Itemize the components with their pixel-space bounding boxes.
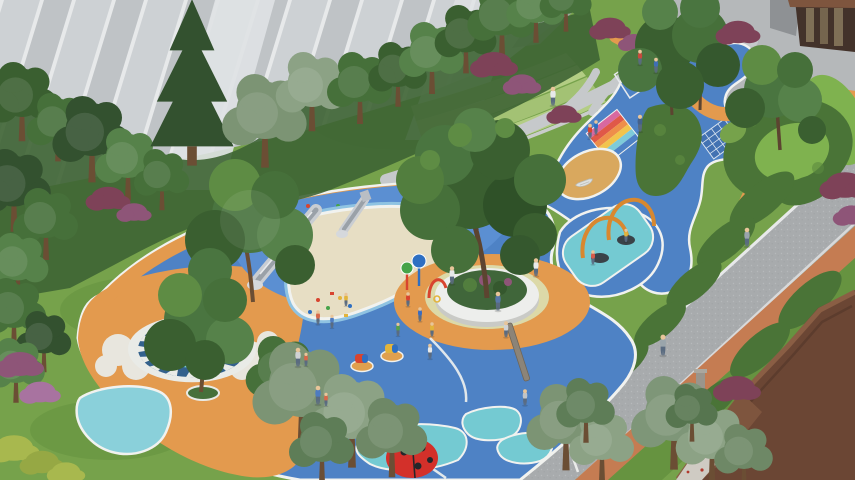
playground-aerial-render: Residential courtyard children's playgro… <box>0 0 855 480</box>
rendering-stage: Residential courtyard children's playgro… <box>0 0 855 480</box>
central-tree-planter <box>394 254 590 350</box>
entrance-canopy <box>788 0 855 8</box>
